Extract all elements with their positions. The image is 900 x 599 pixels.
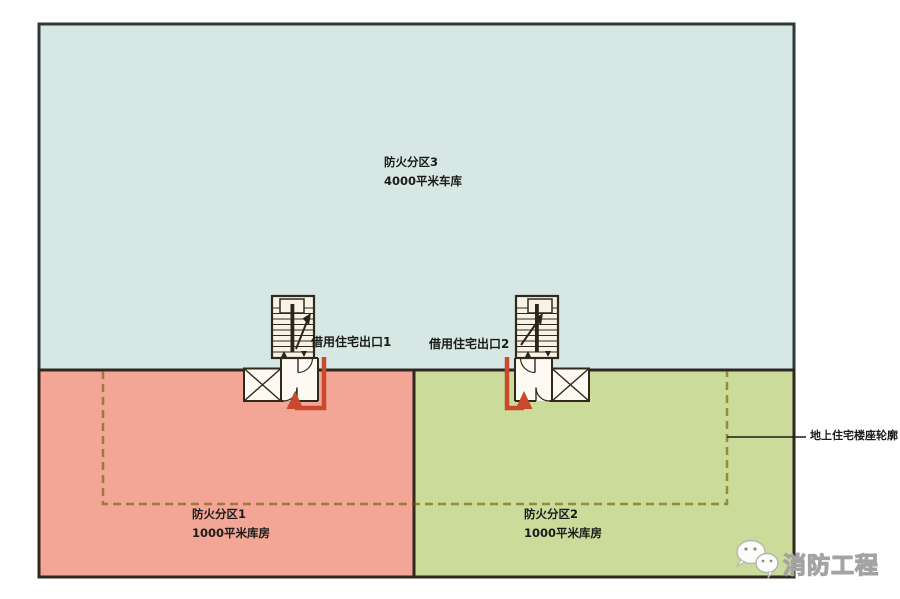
exit-1-label: 借用住宅出口1 [311, 335, 391, 350]
building-outline-label: 地上住宅楼座轮廓 [810, 429, 898, 443]
fire-zone-3-label: 防火分区3 4000平米车库 [384, 153, 462, 191]
floor-plan-diagram: 防火分区3 4000平米车库 防火分区1 1000平米库房 防火分区2 1000… [0, 0, 900, 599]
fire-zone-3-name: 防火分区3 [384, 153, 462, 172]
fire-zone-2-name: 防火分区2 [524, 505, 602, 524]
fire-zone-1-name: 防火分区1 [192, 505, 270, 524]
fire-zone-2-label: 防火分区2 1000平米库房 [524, 505, 602, 543]
stair-landing-2 [528, 299, 552, 313]
watermark-text: 消防工程 [783, 546, 879, 580]
plan-drawing [0, 0, 900, 599]
vestibule-2 [515, 358, 552, 401]
stair-rail-2 [535, 304, 539, 352]
exit-2-label: 借用住宅出口2 [429, 337, 509, 352]
fire-zone-1-label: 防火分区1 1000平米库房 [192, 505, 270, 543]
vestibule-1 [281, 358, 318, 401]
stair-rail-1 [291, 304, 295, 352]
fire-zone-3-area: 4000平米车库 [384, 172, 462, 191]
wechat-chat-bubbles-icon [731, 537, 783, 583]
fire-zone-1-area: 1000平米库房 [192, 524, 270, 543]
fire-zone-1-region [39, 370, 414, 577]
fire-zone-2-area: 1000平米库房 [524, 524, 602, 543]
fire-zone-3-region [39, 24, 794, 370]
